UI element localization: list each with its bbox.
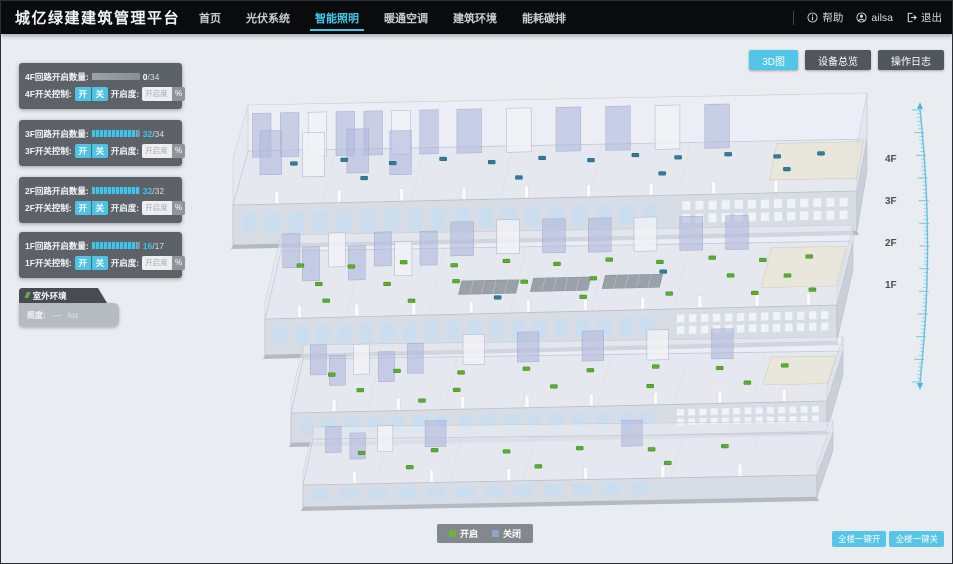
- switch-on-button[interactable]: 开: [75, 201, 91, 215]
- view-button[interactable]: 操作日志: [878, 50, 944, 70]
- outdoor-env-title: 室外环境: [33, 290, 67, 302]
- perforated-panel: [801, 406, 808, 413]
- ruler-arrow-bottom: [917, 383, 923, 390]
- switch-control-label: 1F开关控制:: [25, 257, 72, 269]
- circuit-count-value: 32/32: [143, 186, 164, 196]
- light-dot-on[interactable]: [727, 274, 734, 278]
- circuit-progress-bar: [92, 242, 140, 249]
- window-pane: [340, 488, 358, 500]
- window-pane: [242, 213, 257, 234]
- window-pane: [407, 209, 422, 230]
- partition-wall: [647, 330, 669, 360]
- bulk-action-button[interactable]: 全楼一键关: [889, 531, 944, 547]
- perforated-panel: [821, 323, 828, 331]
- partition-wall: [517, 332, 539, 362]
- perforated-panel: [826, 198, 834, 207]
- light-dot-off[interactable]: [539, 156, 546, 160]
- light-dot-off[interactable]: [725, 152, 732, 156]
- circuit-count-value: 16/17: [143, 241, 164, 251]
- light-dot-off[interactable]: [587, 158, 594, 162]
- light-dot-off[interactable]: [783, 167, 790, 171]
- perforated-panel: [761, 312, 769, 320]
- light-dot-on[interactable]: [744, 381, 751, 385]
- switch-off-button[interactable]: 关: [92, 201, 108, 215]
- light-dot-on[interactable]: [358, 451, 365, 455]
- perforated-panel: [713, 314, 720, 322]
- partition-wall: [606, 106, 631, 150]
- circuit-count-label: 4F回路开启数量:: [25, 71, 89, 83]
- dim-level-label: 开启度:: [111, 145, 139, 157]
- switch-off-button[interactable]: 关: [92, 144, 108, 158]
- floor-label-1F[interactable]: 1F: [885, 280, 897, 291]
- column: [718, 391, 722, 403]
- dim-percent-button[interactable]: %: [172, 144, 185, 158]
- logout-icon: [906, 12, 917, 23]
- window-pane: [544, 484, 562, 496]
- light-dot-off[interactable]: [389, 161, 396, 165]
- column: [462, 187, 466, 199]
- outdoor-env-tab[interactable]: /// 室外环境: [19, 288, 107, 303]
- light-dot-off[interactable]: [774, 155, 781, 159]
- partition-wall: [260, 131, 282, 175]
- partition-wall: [329, 233, 346, 267]
- partition-wall: [303, 132, 325, 177]
- view-button[interactable]: 3D图: [749, 50, 798, 70]
- column: [712, 182, 716, 194]
- legend-label: 关闭: [503, 527, 521, 540]
- window-pane: [631, 483, 649, 495]
- light-dot-on[interactable]: [453, 279, 460, 283]
- perforated-panel: [748, 200, 756, 209]
- perforated-panel: [733, 408, 740, 415]
- dim-level-input[interactable]: [142, 87, 172, 101]
- light-dot-on[interactable]: [297, 264, 304, 268]
- dim-level-label: 开启度:: [111, 202, 139, 214]
- partition-wall: [726, 215, 749, 249]
- circuit-count-value: 32/34: [143, 129, 164, 139]
- on-off-toggle: 开 关: [75, 256, 108, 270]
- light-dot-on[interactable]: [503, 259, 510, 263]
- window-pane: [274, 326, 287, 345]
- light-dot-on[interactable]: [357, 388, 364, 392]
- window-pane: [490, 320, 503, 339]
- circuit-progress-fill: [92, 242, 137, 249]
- column: [774, 180, 778, 192]
- switch-off-button[interactable]: 关: [92, 256, 108, 270]
- perforated-panel: [826, 211, 834, 220]
- light-dot-off[interactable]: [515, 176, 522, 180]
- column: [649, 183, 653, 195]
- light-dot-on[interactable]: [394, 369, 401, 373]
- on-off-toggle: 开 关: [75, 201, 108, 215]
- column: [589, 394, 593, 406]
- column: [400, 189, 404, 201]
- floor-slab-1F[interactable]: [301, 420, 833, 511]
- bulk-actions: 全楼一键开全楼一键关: [832, 531, 944, 547]
- window-pane: [486, 486, 504, 498]
- dim-input-group: %: [142, 144, 185, 158]
- floor-control-panel: 4F回路开启数量: 0/34 4F开关控制: 开 关 开启度: %: [19, 63, 182, 109]
- light-dot-on[interactable]: [580, 295, 587, 299]
- circuit-count-row: 1F回路开启数量: 16/17: [25, 237, 176, 254]
- perforated-panel: [701, 314, 708, 322]
- window-pane: [338, 324, 351, 343]
- perforated-panel: [682, 201, 690, 210]
- light-dot-on[interactable]: [550, 385, 557, 389]
- light-dot-on[interactable]: [606, 258, 613, 262]
- light-dot-on[interactable]: [590, 276, 597, 280]
- window-pane: [478, 207, 493, 228]
- switch-on-button[interactable]: 开: [75, 256, 91, 270]
- switch-control-row: 4F开关控制: 开 关 开启度: %: [25, 85, 176, 102]
- perforated-panel: [809, 323, 816, 331]
- switch-on-button[interactable]: 开: [75, 144, 91, 158]
- floor-control-panel: 3F回路开启数量: 32/34 3F开关控制: 开 关 开启度: %: [19, 120, 182, 166]
- perforated-panel: [688, 409, 695, 416]
- perforated-panel: [737, 325, 744, 333]
- light-dot-on[interactable]: [781, 364, 788, 368]
- light-dot-off[interactable]: [341, 158, 348, 162]
- perforated-panel: [756, 407, 763, 414]
- window-pane: [313, 211, 328, 232]
- perforated-panel: [677, 409, 684, 416]
- main-nav: 首页光伏系统智能照明暖通空调建筑环境能耗碳排: [197, 1, 568, 34]
- column: [755, 294, 759, 306]
- switch-control-label: 4F开关控制:: [25, 88, 72, 100]
- column: [275, 191, 279, 203]
- perforated-panel: [701, 325, 708, 333]
- logout-button[interactable]: 退出: [906, 10, 942, 25]
- bulk-action-button[interactable]: 全楼一键开: [832, 531, 887, 547]
- light-dot-on[interactable]: [751, 291, 758, 295]
- partition-wall: [588, 218, 611, 252]
- partition-wall: [463, 334, 485, 364]
- perforated-panel: [797, 312, 804, 320]
- light-dot-on[interactable]: [451, 263, 458, 267]
- switch-control-row: 3F开关控制: 开 关 开启度: %: [25, 142, 176, 159]
- floor-control-panel: 1F回路开启数量: 16/17 1F开关控制: 开 关 开启度: %: [19, 232, 182, 278]
- light-dot-on[interactable]: [348, 265, 355, 269]
- light-dot-off[interactable]: [817, 152, 824, 156]
- user-menu[interactable]: ailsa: [856, 12, 893, 24]
- nav-item[interactable]: 智能照明: [313, 1, 361, 34]
- perforated-panel: [821, 311, 828, 319]
- window-pane: [525, 206, 540, 227]
- view-button[interactable]: 设备总览: [805, 50, 871, 70]
- floor-label-2F[interactable]: 2F: [885, 238, 897, 249]
- light-dot-off[interactable]: [361, 176, 368, 180]
- floor-slab-3F[interactable]: [263, 215, 853, 359]
- light-dot-on[interactable]: [721, 444, 728, 448]
- light-dot-on[interactable]: [809, 288, 816, 292]
- perforated-panel: [790, 407, 797, 414]
- light-dot-on[interactable]: [535, 465, 542, 469]
- partition-wall: [655, 105, 680, 149]
- partition-wall: [329, 355, 345, 385]
- legend-label: 开启: [460, 527, 478, 540]
- nav-item[interactable]: 暖通空调: [382, 1, 430, 34]
- partition-wall: [283, 234, 300, 268]
- switch-control-row: 1F开关控制: 开 关 开启度: %: [25, 254, 176, 271]
- window-pane: [620, 204, 635, 225]
- dim-percent-button[interactable]: %: [172, 256, 185, 270]
- perforated-panel: [809, 311, 816, 319]
- perforated-panel: [699, 409, 706, 416]
- perforated-panel: [709, 213, 717, 222]
- light-dot-on[interactable]: [759, 258, 766, 262]
- partition-wall: [348, 246, 365, 280]
- partition-wall: [556, 107, 581, 151]
- nav-item[interactable]: 能耗碳排: [520, 1, 568, 34]
- perforated-panel: [677, 315, 685, 323]
- help-button[interactable]: 帮助: [807, 10, 843, 25]
- partition-wall: [378, 352, 394, 382]
- perforated-panel: [785, 312, 793, 320]
- light-dot-on[interactable]: [521, 280, 528, 284]
- ruler-arrow-top: [917, 102, 923, 109]
- floor-label-3F[interactable]: 3F: [885, 196, 897, 207]
- light-dot-on[interactable]: [576, 446, 583, 450]
- light-dot-on[interactable]: [784, 274, 791, 278]
- user-icon: [856, 12, 867, 23]
- header-divider: [793, 11, 794, 25]
- core-block: [763, 356, 836, 385]
- circuit-count-row: 3F回路开启数量: 32/34: [25, 125, 176, 142]
- perforated-panel: [773, 312, 781, 320]
- light-dot-on[interactable]: [666, 292, 673, 296]
- perforated-panel: [761, 324, 769, 332]
- light-dot-on[interactable]: [648, 448, 655, 452]
- column: [525, 395, 529, 407]
- partition-wall: [377, 426, 393, 452]
- light-dot-off[interactable]: [675, 156, 682, 160]
- partition-wall: [425, 420, 446, 446]
- perforated-panel: [709, 201, 717, 210]
- perforated-panel: [725, 313, 732, 321]
- light-dot-off[interactable]: [488, 160, 495, 164]
- dim-input-group: %: [142, 87, 185, 101]
- light-dot-off[interactable]: [632, 153, 639, 157]
- nav-item[interactable]: 首页: [197, 1, 223, 34]
- perforated-panel: [774, 212, 782, 221]
- light-dot-on[interactable]: [647, 384, 654, 388]
- partition-wall: [353, 344, 369, 374]
- column: [782, 389, 786, 401]
- light-dot-on[interactable]: [400, 260, 407, 264]
- light-dot-on[interactable]: [806, 255, 813, 259]
- partition-wall: [506, 108, 531, 153]
- column: [332, 400, 336, 412]
- perforated-panel: [749, 313, 756, 321]
- nav-item[interactable]: 建筑环境: [451, 1, 499, 34]
- partition-wall: [680, 216, 703, 250]
- column: [507, 469, 511, 481]
- on-off-toggle: 开 关: [75, 144, 108, 158]
- perforated-panel: [774, 199, 782, 208]
- view-toolbar: 3D图设备总览操作日志: [749, 50, 944, 70]
- partition-wall: [634, 217, 657, 252]
- column: [584, 467, 588, 479]
- window-pane: [515, 485, 533, 497]
- column: [587, 184, 591, 196]
- light-dot-on[interactable]: [406, 465, 413, 469]
- partition-wall: [497, 219, 520, 253]
- column: [524, 186, 528, 198]
- column: [526, 300, 530, 312]
- light-dot-off[interactable]: [659, 172, 666, 176]
- window-pane: [398, 487, 416, 499]
- column: [654, 392, 658, 404]
- column: [469, 301, 473, 313]
- zoom-ruler-slider[interactable]: [904, 96, 953, 396]
- dim-input-group: %: [142, 201, 185, 215]
- light-dot-off[interactable]: [660, 270, 667, 274]
- light-dot-off[interactable]: [290, 162, 297, 166]
- light-dot-on[interactable]: [315, 282, 322, 286]
- help-label: 帮助: [822, 10, 843, 25]
- circuit-count-label: 1F回路开启数量:: [25, 240, 89, 252]
- floor-control-panel: 2F回路开启数量: 32/32 2F开关控制: 开 关 开启度: %: [19, 177, 182, 223]
- illuminance-label: 照度:: [27, 310, 46, 321]
- light-dot-on[interactable]: [453, 388, 460, 392]
- partition-wall: [420, 110, 439, 154]
- partition-wall: [347, 129, 369, 173]
- light-dot-on[interactable]: [323, 299, 330, 303]
- perforated-panel: [689, 326, 696, 334]
- light-dot-on[interactable]: [408, 299, 415, 303]
- perforated-panel: [800, 211, 808, 220]
- atrium-opening: [530, 277, 590, 292]
- switch-on-button[interactable]: 开: [75, 87, 91, 101]
- light-dot-on[interactable]: [328, 373, 335, 377]
- window-pane: [369, 488, 387, 500]
- partition-wall: [451, 222, 474, 256]
- column: [698, 296, 702, 308]
- core-block: [769, 142, 863, 180]
- window-pane: [425, 322, 438, 341]
- atrium-opening: [602, 274, 662, 288]
- light-dot-on[interactable]: [587, 368, 594, 372]
- circuit-count-row: 4F回路开启数量: 0/34: [25, 68, 176, 85]
- dim-percent-button[interactable]: %: [172, 201, 185, 215]
- window-pane: [403, 323, 416, 342]
- perforated-panel: [787, 212, 795, 221]
- dim-level-input[interactable]: [142, 256, 172, 270]
- window-pane: [555, 319, 568, 338]
- partition-wall: [395, 241, 412, 275]
- app-window: 城亿绿建建筑管理平台 首页光伏系统智能照明暖通空调建筑环境能耗碳排 帮助 ail…: [0, 0, 953, 564]
- circuit-count-label: 3F回路开启数量:: [25, 128, 89, 140]
- perforated-panel: [812, 406, 819, 413]
- perforated-panel: [813, 198, 821, 207]
- light-dot-on[interactable]: [384, 282, 391, 286]
- floor-label-4F[interactable]: 4F: [885, 154, 897, 165]
- circuit-progress-fill: [92, 130, 137, 137]
- partition-wall: [310, 345, 326, 375]
- perforated-panel: [749, 324, 756, 332]
- partition-wall: [302, 247, 319, 281]
- partition-wall: [457, 109, 482, 154]
- partition-wall: [407, 343, 423, 373]
- light-dot-on[interactable]: [503, 450, 510, 454]
- perforated-panel: [722, 200, 730, 209]
- column: [396, 398, 400, 410]
- circuit-count-label: 2F回路开启数量:: [25, 185, 89, 197]
- light-dot-on[interactable]: [716, 366, 723, 370]
- illuminance-unit: lux: [68, 311, 78, 320]
- partition-wall: [420, 231, 437, 265]
- window-pane: [573, 484, 591, 496]
- window-pane: [311, 489, 329, 501]
- window-pane: [317, 325, 330, 344]
- window-pane: [431, 208, 446, 229]
- column: [583, 299, 587, 311]
- window-pane: [384, 209, 399, 230]
- window-pane: [572, 205, 587, 226]
- perforated-panel: [840, 210, 848, 219]
- light-dot-on[interactable]: [523, 367, 530, 371]
- column: [353, 472, 357, 484]
- light-dot-off[interactable]: [494, 296, 501, 300]
- light-dot-on[interactable]: [652, 365, 659, 369]
- perforated-panel: [745, 408, 752, 415]
- window-pane: [447, 321, 460, 340]
- light-dot-on[interactable]: [664, 461, 671, 465]
- light-dot-on[interactable]: [553, 262, 560, 266]
- dim-level-input[interactable]: [142, 201, 172, 215]
- dim-level-label: 开启度:: [111, 257, 139, 269]
- perforated-panel: [761, 199, 769, 208]
- legend-swatch: [492, 530, 499, 537]
- nav-item[interactable]: 光伏系统: [244, 1, 292, 34]
- partition-wall: [622, 420, 643, 446]
- switch-off-button[interactable]: 关: [92, 87, 108, 101]
- window-pane: [456, 486, 474, 498]
- partition-wall: [374, 232, 391, 266]
- light-dot-on[interactable]: [709, 256, 716, 260]
- window-pane: [619, 317, 632, 336]
- light-dot-off[interactable]: [440, 157, 447, 161]
- window-pane: [382, 323, 395, 342]
- top-header: 城亿绿建建筑管理平台 首页光伏系统智能照明暖通空调建筑环境能耗碳排 帮助 ail…: [1, 1, 952, 34]
- perforated-panel: [787, 199, 795, 208]
- perforated-panel: [767, 407, 774, 414]
- perforated-panel: [711, 408, 718, 415]
- light-dot-on[interactable]: [458, 371, 465, 375]
- outdoor-env-panel: /// 室外环境 照度: — lux: [19, 288, 119, 327]
- logout-label: 退出: [921, 10, 942, 25]
- outdoor-env-body: 照度: — lux: [19, 303, 119, 327]
- legend-item: 开启: [449, 527, 478, 540]
- perforated-panel: [722, 408, 729, 415]
- circuit-progress-bar: [92, 187, 140, 194]
- column: [461, 397, 465, 409]
- column: [355, 304, 359, 316]
- perforated-panel: [778, 407, 785, 414]
- perforated-panel: [785, 323, 793, 331]
- partition-wall: [543, 219, 566, 253]
- partition-wall: [280, 112, 299, 156]
- light-dot-on[interactable]: [656, 260, 663, 264]
- perforated-panel: [748, 213, 756, 222]
- status-legend: 开启关闭: [437, 524, 533, 543]
- perforated-panel: [840, 198, 848, 207]
- perforated-panel: [813, 211, 821, 220]
- dim-level-input[interactable]: [142, 144, 172, 158]
- dim-percent-button[interactable]: %: [172, 87, 185, 101]
- light-dot-on[interactable]: [431, 448, 438, 452]
- light-dot-on[interactable]: [418, 399, 425, 403]
